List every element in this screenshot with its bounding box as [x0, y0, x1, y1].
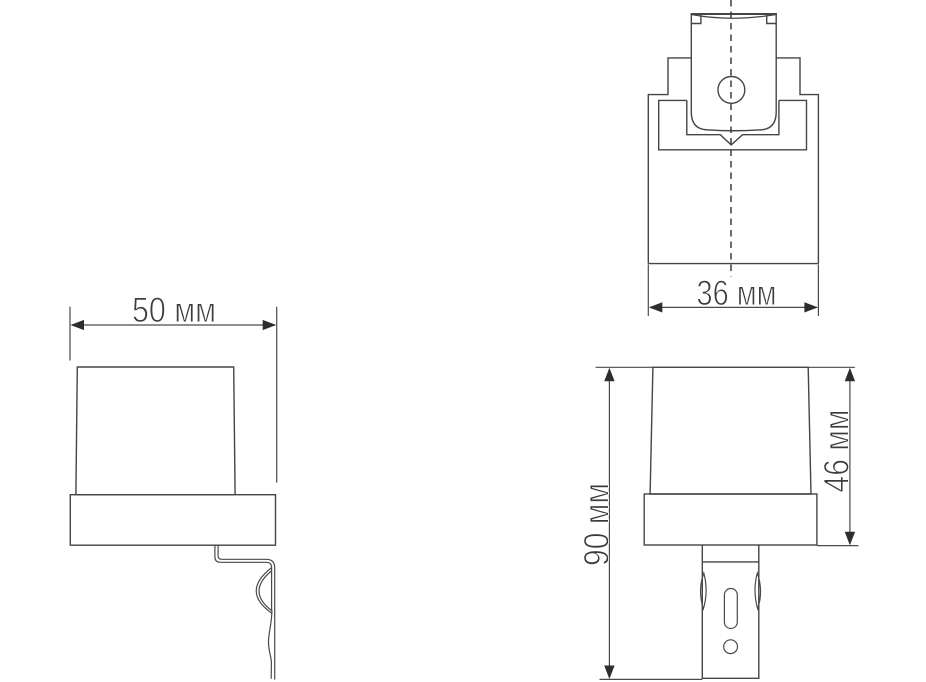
svg-text:90 мм: 90 мм: [578, 483, 617, 566]
svg-text:50 мм: 50 мм: [132, 291, 216, 330]
svg-text:46 мм: 46 мм: [818, 410, 857, 493]
svg-text:36 мм: 36 мм: [697, 274, 777, 313]
